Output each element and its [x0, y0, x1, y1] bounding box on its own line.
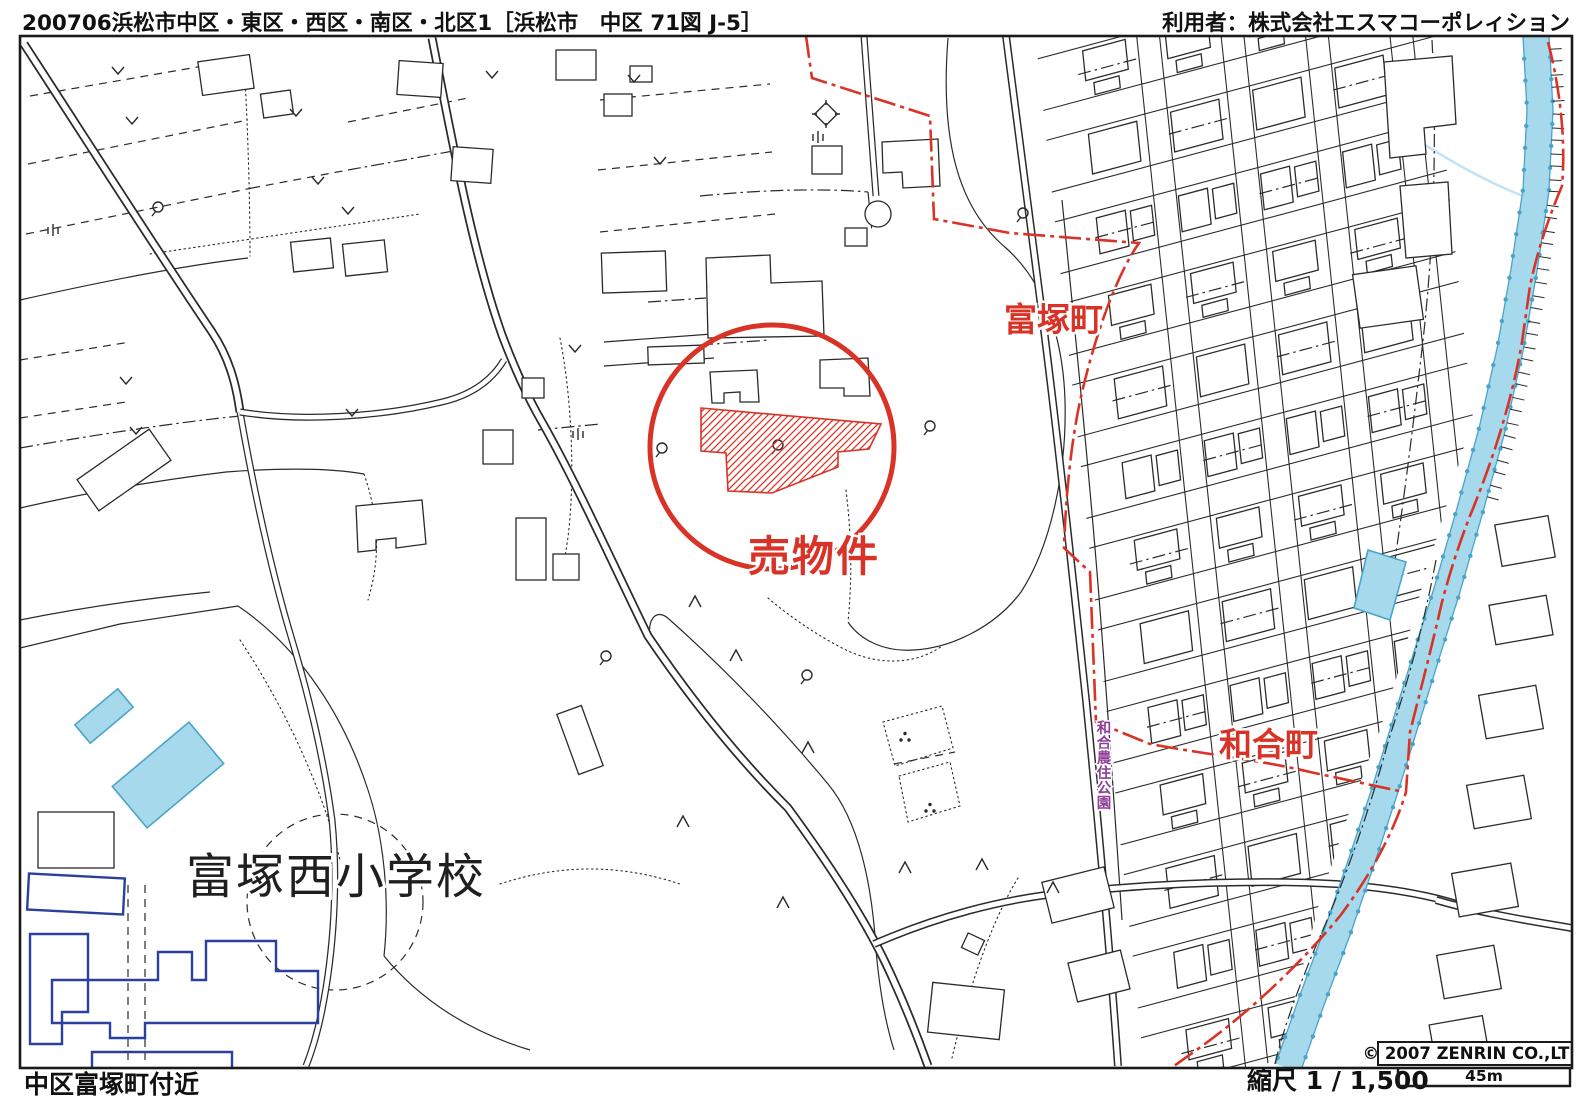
footer-scale-label: 縮尺 1 / 1,500: [1247, 1066, 1429, 1095]
header-right-user: 利用者：株式会社エスマコーポレィション: [1162, 10, 1570, 36]
copyright-text: © 2007 ZENRIN CO.,LTD.: [1363, 1044, 1586, 1063]
property-parcel-hatched: [701, 408, 881, 493]
copyright-box: © 2007 ZENRIN CO.,LTD.: [1363, 1042, 1586, 1065]
park-label: 和合農住公園: [1096, 720, 1112, 812]
district-label-wago: 和合町: [1219, 725, 1318, 764]
zenrin-map-page: 売物件 富塚町 和合町 富塚西小学校 和合農住公園 © 2007 ZENRIN …: [0, 0, 1586, 1100]
footer-area-label: 中区富塚町付近: [24, 1070, 199, 1099]
header-left-title: 200706浜松市中区・東区・西区・南区・北区1［浜松市 中区 71図 J-5］: [22, 10, 763, 36]
school-building-north: [27, 874, 125, 915]
map-content: 売物件 富塚町 和合町 富塚西小学校 和合農住公園 © 2007 ZENRIN …: [20, 0, 1586, 1100]
school-building-south: [92, 1052, 232, 1068]
school-label: 富塚西小学校: [186, 849, 486, 905]
scale-distance-label: 45m: [1465, 1067, 1503, 1085]
school-pool-large: [112, 722, 223, 828]
district-label-tomitsuka: 富塚町: [1004, 300, 1103, 339]
for-sale-label: 売物件: [748, 532, 880, 581]
school-building-main: [52, 941, 318, 1038]
map-canvas: 売物件 富塚町 和合町 富塚西小学校 和合農住公園 © 2007 ZENRIN …: [0, 0, 1586, 1100]
water-facility: [1354, 550, 1406, 620]
school-pool-small: [75, 689, 133, 743]
terrain-and-parcel-lines: [20, 38, 1122, 1060]
school-building-west: [30, 934, 88, 1044]
